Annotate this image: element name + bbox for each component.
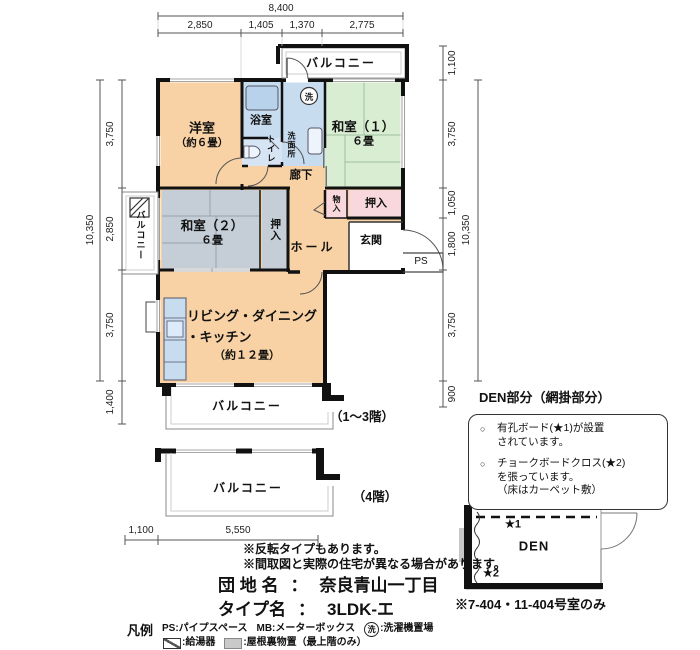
footer-note-1: ※反転タイプもあります。 xyxy=(243,542,386,557)
window-ldk-bottom-1 xyxy=(176,383,234,388)
dim-right-seg-3: 1,050 xyxy=(448,190,458,215)
den-room-label: DEN xyxy=(519,540,549,553)
den-star1: ★1 xyxy=(505,520,521,531)
legend-heater: :給湯器 xyxy=(163,637,215,650)
den-title: DEN部分（網掛部分） xyxy=(479,390,610,406)
water-heater-box xyxy=(146,302,157,332)
window-4f-2 xyxy=(252,449,312,454)
label-hall: ホール xyxy=(290,241,335,253)
attic-storage-legend-icon xyxy=(224,638,242,649)
dim-top-seg-2: 1,405 xyxy=(248,21,273,31)
label-ps: PS xyxy=(414,257,427,267)
den-note2-line3: （床はカーペット敷） xyxy=(497,484,602,497)
label-western-room: 洋室 xyxy=(189,122,215,135)
estate-name-value: 奈良青山一丁目 xyxy=(319,576,438,595)
label-ldk-line2: ・キッチン xyxy=(186,331,251,344)
label-balcony-left: バルコニー xyxy=(136,210,145,260)
type-name-row: タイプ名：3LDK-エ xyxy=(218,599,394,620)
dim-top-seg-1: 2,850 xyxy=(187,21,212,31)
label-balcony-4f: バルコニー xyxy=(213,482,283,494)
label-floors-1-3: （1～3階） xyxy=(330,411,394,424)
estate-name-separator: ： xyxy=(290,576,307,595)
den-note2-line1: チョークボードクロス(★2) xyxy=(497,457,625,470)
dim-bottom-seg-1: 1,100 xyxy=(128,526,153,536)
dim-right-seg-5: 3,750 xyxy=(448,312,458,337)
floor-plan-page: 8,400 2,850 1,405 1,370 2,775 10,350 3,7… xyxy=(0,0,700,650)
label-floor-4: （4階） xyxy=(353,491,397,504)
bathtub xyxy=(246,86,278,110)
dim-bottom-seg-2: 5,550 xyxy=(225,526,250,536)
label-washitsu1-size: ６畳 xyxy=(352,137,374,148)
dim-right-seg-4: 1,800 xyxy=(448,231,458,256)
legend-washer-text: :洗濯機置場 xyxy=(380,623,433,636)
legend-mb: MB:メーターボックス xyxy=(256,623,355,636)
den-bullet2-mark: ○ xyxy=(480,459,485,470)
label-washitsu1: 和室（１） xyxy=(332,121,395,134)
label-genkan: 玄関 xyxy=(360,236,382,247)
label-bath: 浴室 xyxy=(250,116,272,127)
washer-legend-icon: 洗 xyxy=(364,622,379,637)
dim-right-seg-2: 3,750 xyxy=(448,121,458,146)
label-western-size: （約６畳） xyxy=(176,138,229,149)
den-bullet1-mark: ○ xyxy=(480,424,485,435)
window-western-top xyxy=(170,78,234,83)
label-washitsu2-size: ６畳 xyxy=(201,236,223,247)
dim-left-seg-3: 3,750 xyxy=(106,312,116,337)
dim-right-total: 10,350 xyxy=(462,215,472,246)
legend-row-2: :給湯器 :屋根裏物置（最上階のみ） xyxy=(163,637,367,650)
label-corridor: 廊下 xyxy=(290,170,313,182)
legend-row-1: PS:パイプスペース MB:メーターボックス 洗 :洗濯機置場 xyxy=(162,622,433,637)
dim-top-total: 8,400 xyxy=(268,4,293,14)
label-ldk-line1: リビング・ダイニング xyxy=(187,310,317,323)
toilet-bowl xyxy=(244,146,260,158)
door-arc-den xyxy=(601,513,637,549)
kitchen-sink xyxy=(167,321,183,337)
footer-note-2: ※間取図と実際の住宅が異なる場合があります。 xyxy=(243,557,506,572)
dim-left-seg-2: 2,850 xyxy=(106,216,116,241)
den-footnote: ※7-404・11-404号室のみ xyxy=(455,597,606,613)
type-name-separator: ： xyxy=(298,600,315,619)
dim-left-total: 10,350 xyxy=(86,215,96,246)
dim-left-seg-1: 3,750 xyxy=(106,121,116,146)
dim-left-seg-4: 1,400 xyxy=(106,389,116,414)
window-washitsu1-right xyxy=(401,96,406,168)
dim-top-seg-3: 1,370 xyxy=(289,21,314,31)
legend-attic: :屋根裏物置（最上階のみ） xyxy=(224,637,366,650)
dim-top-seg-4: 2,775 xyxy=(349,21,374,31)
den-note2-line2: を張っています。 xyxy=(497,471,579,484)
label-monoire: 物入 xyxy=(332,195,340,213)
dim-right-seg-6: 900 xyxy=(448,386,458,403)
kitchen-counter xyxy=(164,298,186,380)
label-oshiire-side: 押入 xyxy=(270,219,281,242)
estate-name-row: 団 地 名：奈良青山一丁目 xyxy=(218,575,438,596)
label-balcony-bottom: バルコニー xyxy=(212,400,282,412)
label-washer-symbol: 洗 xyxy=(305,92,314,101)
dim-right-seg-1: 1,100 xyxy=(448,50,458,75)
legend-attic-text: :屋根裏物置（最上階のみ） xyxy=(243,637,366,650)
den-note1-line1: 有孔ボード(★1)が設置 xyxy=(497,422,604,435)
legend-washer: 洗 :洗濯機置場 xyxy=(364,622,433,637)
type-name-value: 3LDK-エ xyxy=(327,600,394,619)
legend-ps: PS:パイプスペース xyxy=(162,623,247,636)
legend-heater-text: :給湯器 xyxy=(182,637,215,650)
water-heater-legend-icon xyxy=(163,638,181,649)
den-note1-line2: されています。 xyxy=(497,436,569,449)
fusuma-doors xyxy=(174,268,250,272)
door-genkan-opening xyxy=(401,230,406,268)
type-name-label: タイプ名 xyxy=(218,600,286,619)
window-kitchen-left xyxy=(156,300,161,332)
label-oshiire-top: 押入 xyxy=(365,199,387,210)
window-4f-1 xyxy=(176,449,236,454)
label-ldk-size: （約１２畳） xyxy=(214,351,280,362)
legend-title: 凡例 xyxy=(127,623,153,639)
window-western-left xyxy=(156,136,161,166)
window-ldk-bottom-2 xyxy=(254,383,312,388)
label-washroom: 洗面所 xyxy=(287,132,295,159)
washbasin xyxy=(308,128,322,154)
label-toilet: トイレ xyxy=(267,135,276,164)
estate-name-label: 団 地 名 xyxy=(218,576,278,595)
label-washitsu2: 和室（２） xyxy=(181,220,244,233)
label-balcony-top: バルコニー xyxy=(306,57,376,69)
